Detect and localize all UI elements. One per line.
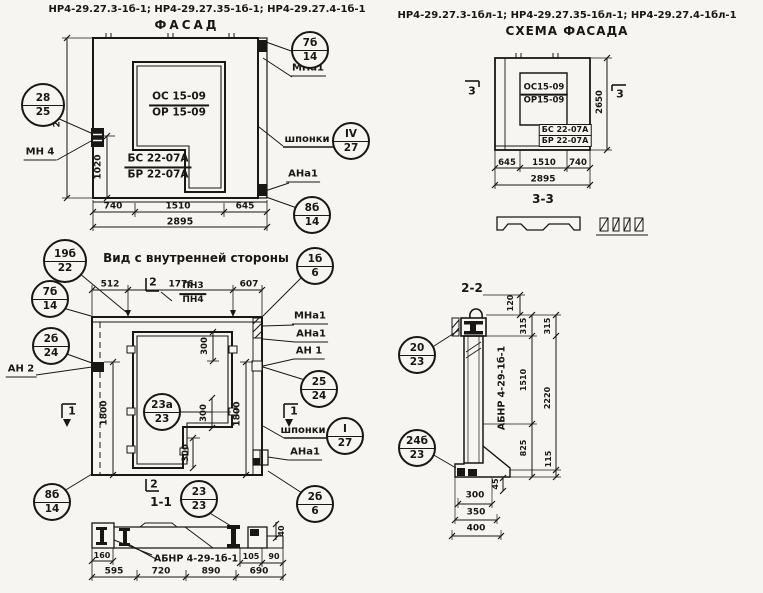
- inner-dim-300c: 300: [182, 444, 191, 462]
- scheme-dim-740: 740: [569, 159, 587, 168]
- scheme-marker-right: 3: [616, 89, 624, 100]
- section11-dim-90: 90: [268, 553, 279, 561]
- scheme-dim-height: 2650: [596, 90, 605, 114]
- section22-label: АБНР 4-29-1б-1: [497, 346, 507, 430]
- section22-callout-24b-23: 24б 23: [398, 429, 436, 467]
- facade-stamp-bs-br: БС 22-07А БР 22-07А: [124, 153, 191, 180]
- inner-dim-300b: 300: [200, 404, 209, 422]
- inner-callout-25-24: 25 24: [300, 370, 338, 408]
- inner-label-pn: ПН3 ПН4: [179, 282, 206, 306]
- inner-callout-keys: I 27: [326, 417, 364, 455]
- facade-dim-740: 740: [104, 203, 123, 212]
- scheme-section-profile: [497, 217, 648, 235]
- section11-dim-720: 720: [152, 568, 171, 577]
- facade-label-keys: шпонки: [284, 135, 329, 145]
- section22-dim-2220: 2220: [544, 387, 552, 409]
- facade-dim-1510: 1510: [165, 203, 190, 212]
- inner-callout-7b-14: 7б 14: [31, 280, 69, 318]
- section11-dim-105: 105: [243, 553, 260, 561]
- section22-dim-400: 400: [467, 525, 486, 534]
- stamp-or: ОР 15-09: [149, 106, 209, 119]
- inner-dim-1800-left: 1800: [101, 400, 110, 425]
- section22-dim-115: 115: [545, 451, 553, 468]
- facade-dim-total: 2895: [167, 217, 193, 227]
- drawing-linework: [0, 0, 763, 593]
- stamp-os: ОС15-09: [521, 84, 568, 96]
- inner-callout-1b-6: 1б 6: [296, 247, 334, 285]
- scheme-section-label: 3-3: [532, 193, 554, 205]
- scheme-marker-left: 3: [468, 86, 476, 97]
- facade-label-ana1: АНа1: [286, 170, 320, 183]
- stamp-os: ОС 15-09: [149, 91, 209, 106]
- inner-callout-19b-22: 19б 22: [43, 239, 87, 283]
- facade-label-mn4: МН 4: [24, 148, 57, 161]
- scheme-dim-1510: 1510: [532, 159, 556, 168]
- inner-marker-left: 1: [68, 406, 76, 417]
- inner-callout-23-23: 23 23: [180, 480, 218, 518]
- drawing-sheet: НР4-29.27.3-1б-1; НР4-29.27.35-1б-1; НР4…: [0, 0, 763, 593]
- section22-title: 2-2: [461, 282, 483, 294]
- header-left-codes: НР4-29.27.3-1б-1; НР4-29.27.35-1б-1; НР4…: [48, 5, 365, 15]
- facade-dim-1020: 1020: [95, 154, 104, 179]
- section11-profile: [92, 523, 283, 548]
- section22-dim-120: 120: [507, 295, 515, 312]
- facade-stamp-os-or: ОС 15-09 ОР 15-09: [149, 91, 209, 118]
- section22-dim-350: 350: [467, 509, 486, 518]
- inner-callout-23a-23: 23а 23: [143, 393, 181, 431]
- inner-marker-top: 2: [149, 277, 157, 288]
- facade-callout-7b-14: 7б 14: [291, 31, 329, 69]
- facade-dim-645: 645: [236, 203, 255, 212]
- header-right-codes: НР4-29.27.3-1бл-1; НР4-29.27.35-1бл-1; Н…: [397, 11, 736, 21]
- section22-dim-45: 45: [492, 478, 500, 489]
- inner-dim-512: 512: [101, 281, 120, 290]
- facade-callout-28-25: 28 25: [21, 83, 65, 127]
- inner-callout-2b-24: 2б 24: [32, 327, 70, 365]
- section11-dim-595: 595: [105, 568, 124, 577]
- inner-label-keys: шпонки: [280, 426, 325, 436]
- inner-dim-607: 607: [240, 281, 259, 290]
- facade-callout-8b-14: 8б 14: [293, 196, 331, 234]
- stamp-br: БР 22-07А: [124, 168, 191, 181]
- inner-label-ana1-top: АНа1: [294, 330, 328, 343]
- facade-title: ФАСАД: [155, 19, 220, 31]
- scheme-dim-total: 2895: [530, 176, 555, 185]
- scheme-stamp-os-or: ОС15-09 ОР15-09: [521, 84, 568, 107]
- section11-label: АБНР 4-29-1б-1: [154, 554, 238, 564]
- inner-dimensions: [89, 285, 265, 478]
- inner-dim-300a: 300: [201, 337, 210, 355]
- inner-label-an2: АН 2: [6, 365, 37, 378]
- section11-dim-890: 890: [202, 568, 221, 577]
- section22-dim-825: 825: [520, 440, 528, 457]
- section22-dim-315-inner: 315: [520, 318, 528, 335]
- section11-dim-690: 690: [250, 568, 269, 577]
- facade-callout-keys: IV 27: [332, 122, 370, 160]
- label-pn4: ПН4: [179, 295, 206, 306]
- section11-dim-40: 40: [278, 525, 286, 536]
- stamp-or: ОР15-09: [521, 96, 568, 106]
- inner-label-an1: АН 1: [294, 347, 325, 360]
- inner-title: Вид с внутренней стороны: [103, 252, 289, 264]
- section11-dim-160: 160: [94, 552, 111, 560]
- section22-callout-20-23: 20 23: [398, 336, 436, 374]
- section22-dim-315-outer: 315: [544, 318, 552, 335]
- inner-marker-right: 1: [290, 406, 298, 417]
- inner-label-mna1: МНа1: [292, 312, 328, 325]
- scheme-dim-645: 645: [498, 159, 516, 168]
- inner-callout-2b-6: 2б 6: [296, 485, 334, 523]
- inner-marker-bottom: 2: [150, 479, 158, 490]
- label-pn3: ПН3: [179, 282, 206, 295]
- inner-callout-8b-14: 8б 14: [33, 483, 71, 521]
- inner-dim-1800-right: 1800: [234, 401, 243, 426]
- scheme-dimensions: [492, 55, 612, 189]
- stamp-bs: БС 22-07А: [124, 153, 191, 168]
- scheme-title: СХЕМА ФАСАДА: [506, 25, 629, 37]
- section22-dim-300: 300: [466, 492, 485, 501]
- scheme-stamp-br: БР 22-07А: [539, 135, 592, 147]
- inner-label-ana1-bot: АНа1: [288, 448, 322, 461]
- inner-section-label: 1-1: [150, 496, 172, 508]
- section22-dim-1510: 1510: [520, 369, 528, 391]
